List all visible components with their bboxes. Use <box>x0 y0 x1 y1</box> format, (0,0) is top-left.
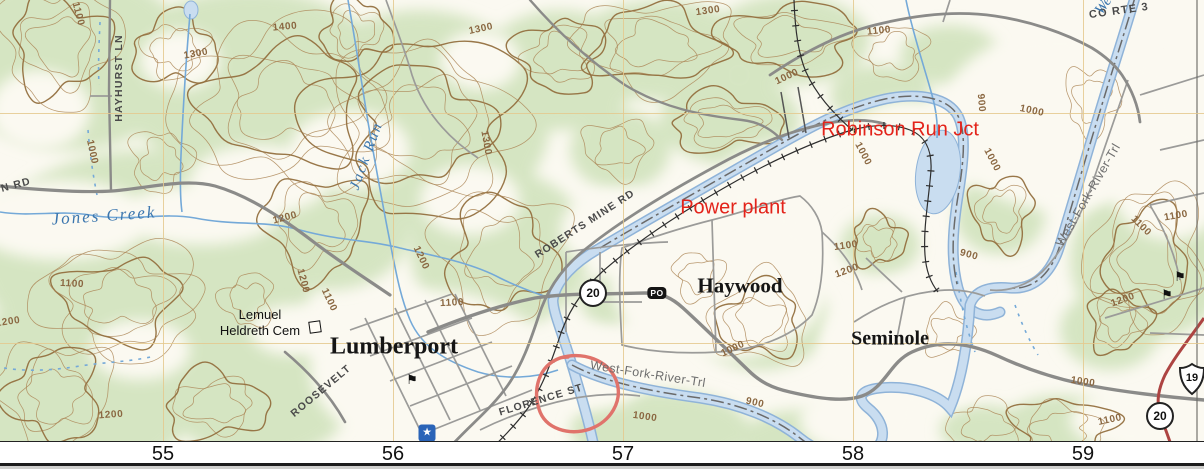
contour-label: 1100 <box>440 297 465 309</box>
route-20-shield-southeast: 20 <box>1146 402 1174 430</box>
grid-easting-number: 55 <box>152 443 174 466</box>
star-marker: ★ <box>419 425 436 442</box>
school-flag-icon: ⚑ <box>1174 269 1186 285</box>
grid-easting-number: 56 <box>382 443 404 466</box>
svg-text:19: 19 <box>1186 372 1198 384</box>
school-flag-icon: ⚑ <box>1161 287 1173 303</box>
grid-easting-number: 57 <box>612 443 634 466</box>
map-collar: 5556575859 <box>0 441 1204 469</box>
contour-label: 1100 <box>60 278 85 290</box>
grid-easting-number: 58 <box>842 443 864 466</box>
grid-line <box>163 0 164 441</box>
route-20-shield: 20 <box>579 279 607 307</box>
grid-line <box>1083 0 1084 441</box>
contour-label: 900 <box>975 93 988 112</box>
grid-line <box>853 0 854 441</box>
contour-label: 1400 <box>272 20 298 33</box>
map-canvas[interactable]: Robinson Run Jct Power plant Lumberport … <box>0 0 1204 441</box>
school-flag-icon: ⚑ <box>406 372 418 388</box>
map-artwork <box>0 0 1204 441</box>
grid-easting-number: 59 <box>1072 443 1094 466</box>
grid-line <box>393 0 394 441</box>
topo-map-screenshot: Robinson Run Jct Power plant Lumberport … <box>0 0 1204 469</box>
grid-line <box>623 0 624 441</box>
post-office-badge: PO <box>647 287 666 299</box>
contour-label: 1200 <box>98 409 123 422</box>
cemetery-symbol <box>308 320 322 334</box>
